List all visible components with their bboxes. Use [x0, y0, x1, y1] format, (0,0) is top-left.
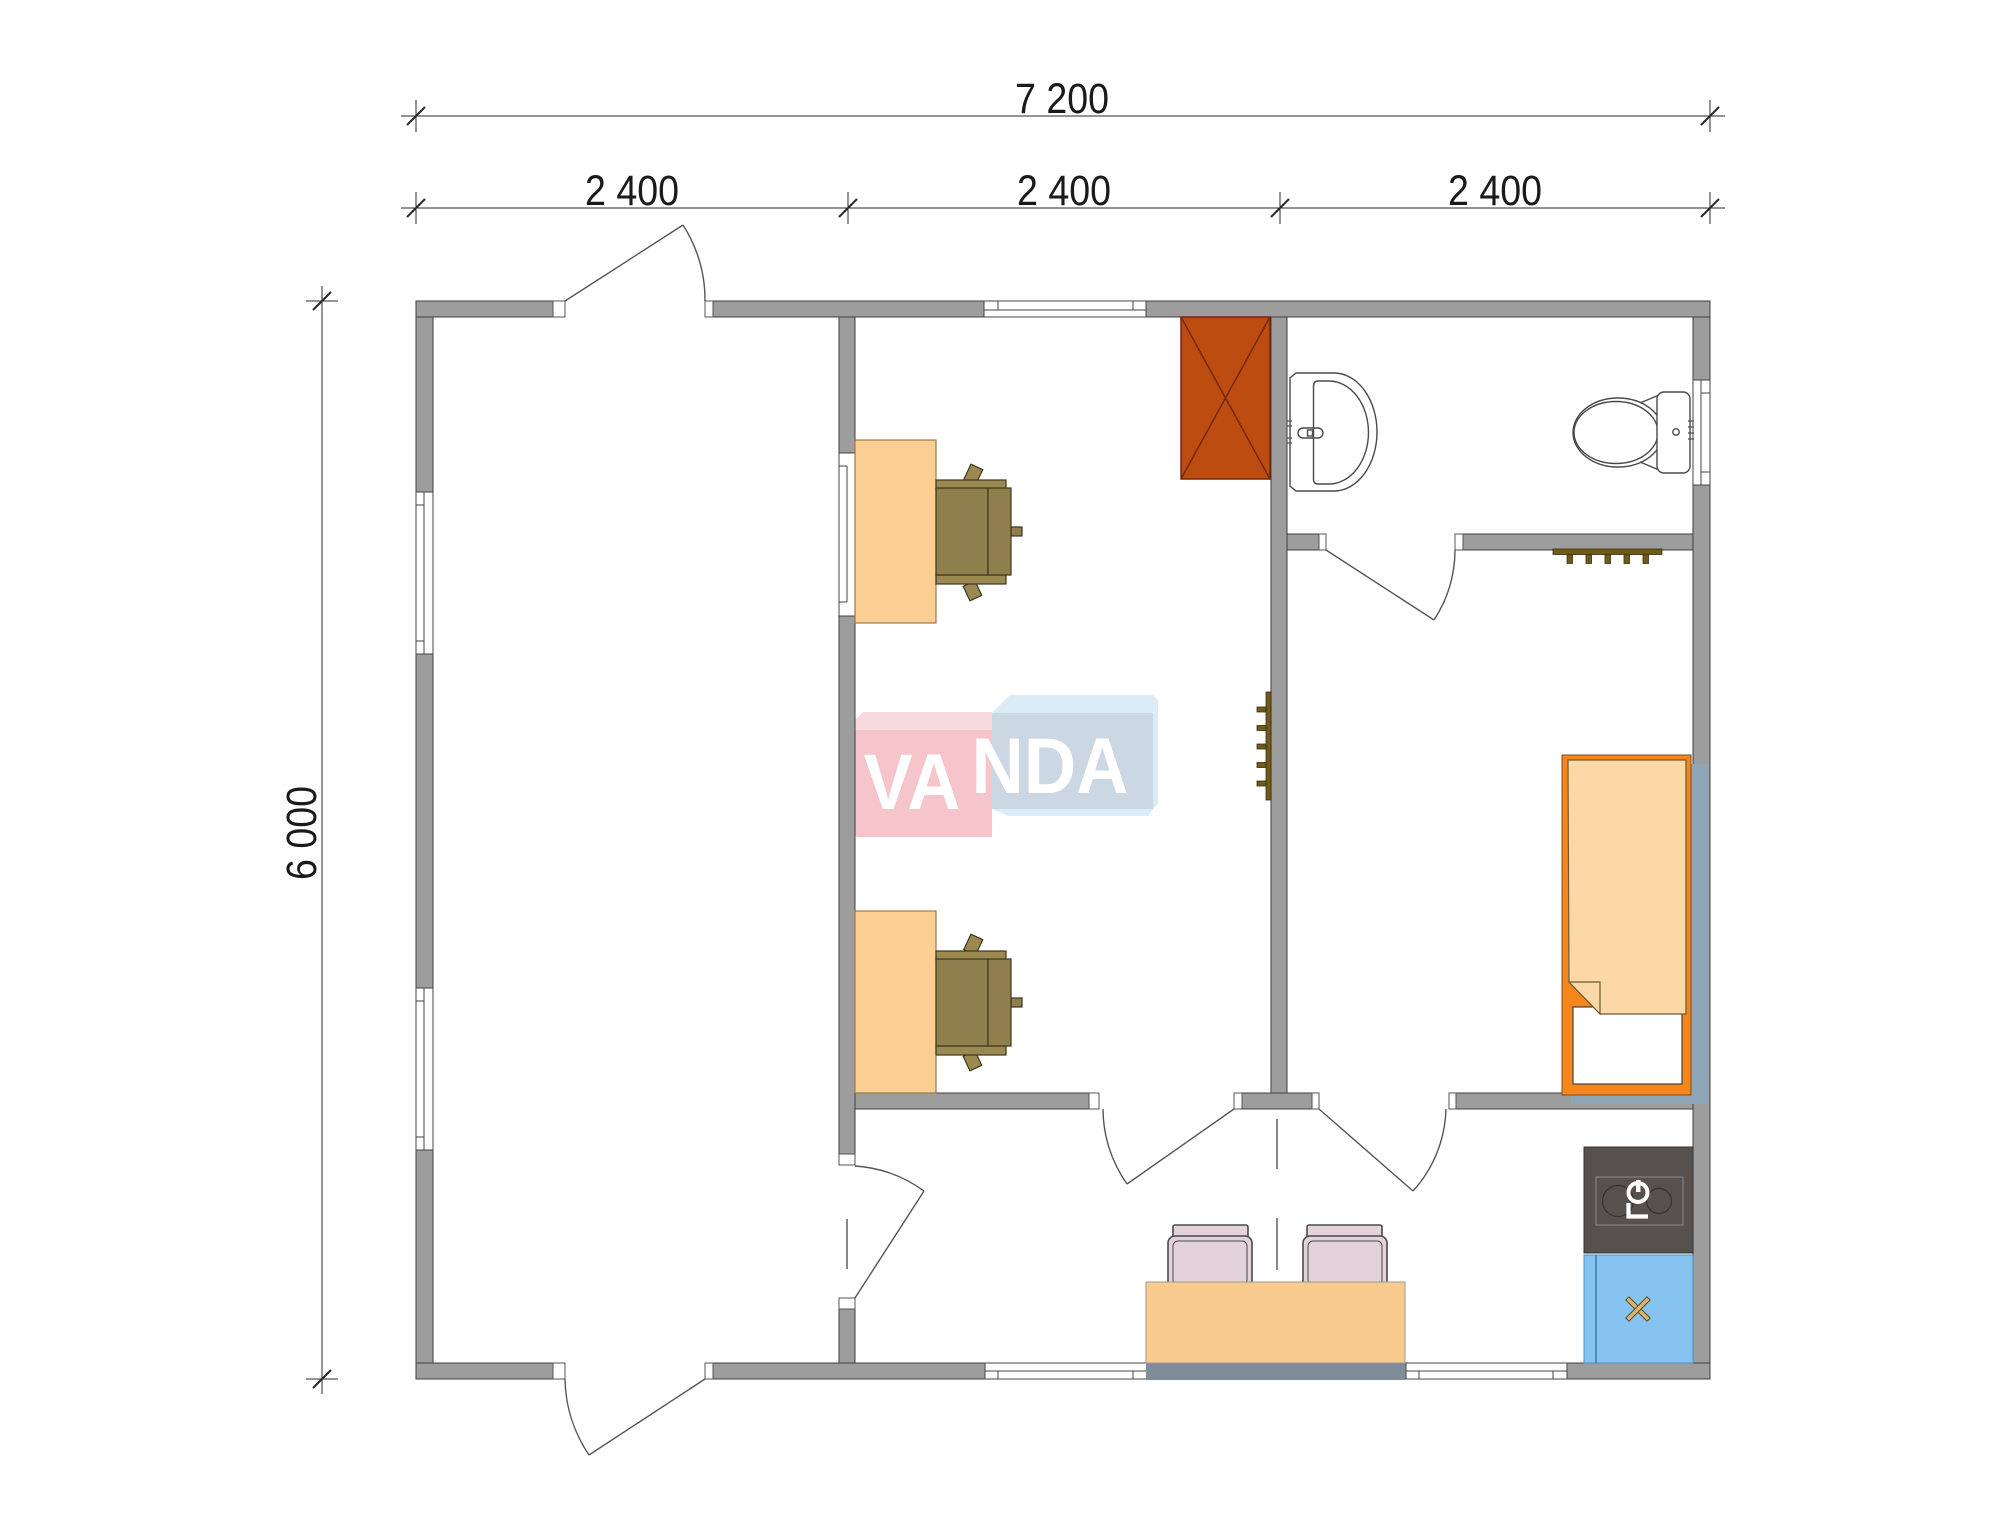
svg-text:2 400: 2 400: [1017, 167, 1111, 215]
svg-text:7 200: 7 200: [1015, 75, 1109, 123]
svg-text:VA: VA: [864, 737, 961, 826]
svg-text:6 000: 6 000: [278, 786, 326, 880]
svg-text:NDA: NDA: [972, 721, 1129, 810]
svg-text:2 400: 2 400: [585, 167, 679, 215]
svg-text:2 400: 2 400: [1448, 167, 1542, 215]
